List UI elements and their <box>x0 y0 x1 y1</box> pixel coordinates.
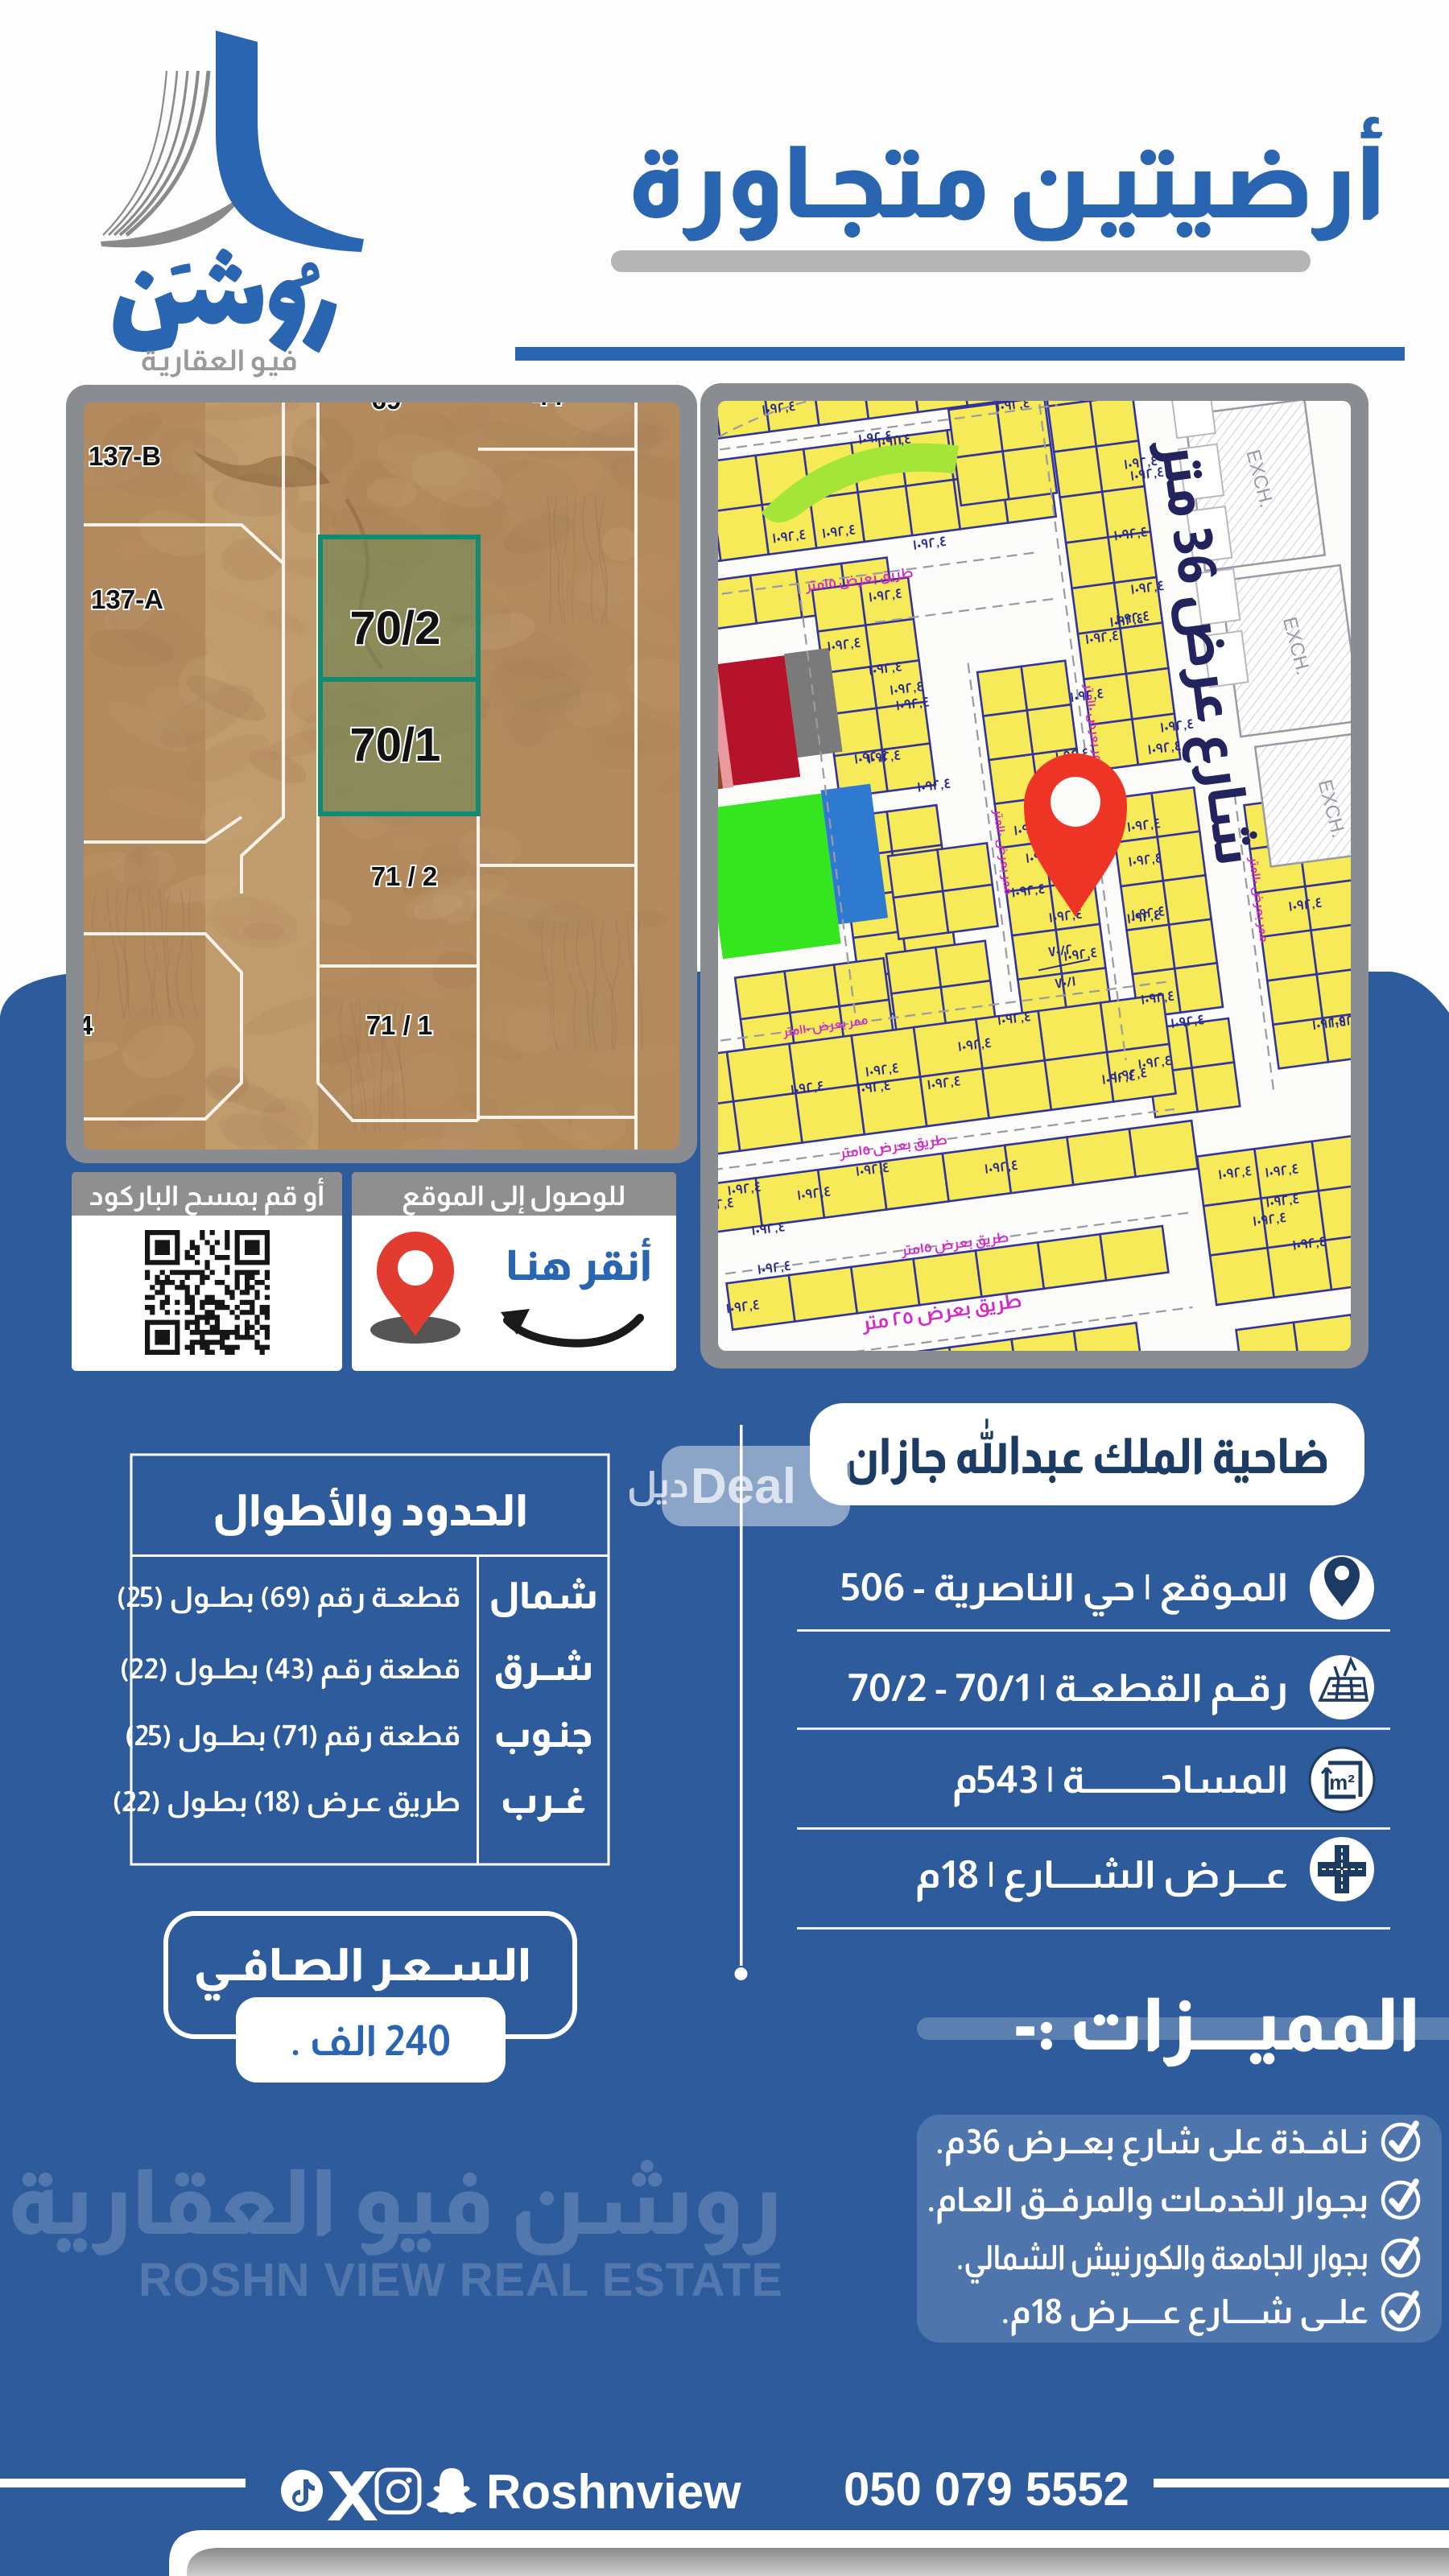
svg-text:71 / 2: 71 / 2 <box>371 861 438 891</box>
svg-text:050 079 5552: 050 079 5552 <box>844 2463 1129 2516</box>
svg-text:70/2: 70/2 <box>350 602 441 654</box>
svg-text:ROSHN VIEW REAL ESTATE: ROSHN VIEW REAL ESTATE <box>138 2254 782 2306</box>
svg-text:137-B: 137-B <box>89 441 161 471</box>
svg-text:m²: m² <box>1329 1770 1355 1794</box>
svg-text:137-A: 137-A <box>91 584 163 614</box>
svg-text:Roshnview: Roshnview <box>486 2465 741 2519</box>
svg-text:70/1: 70/1 <box>350 719 441 771</box>
svg-text:Deal: Deal <box>691 1459 796 1514</box>
svg-text:71 / 1: 71 / 1 <box>366 1010 433 1040</box>
